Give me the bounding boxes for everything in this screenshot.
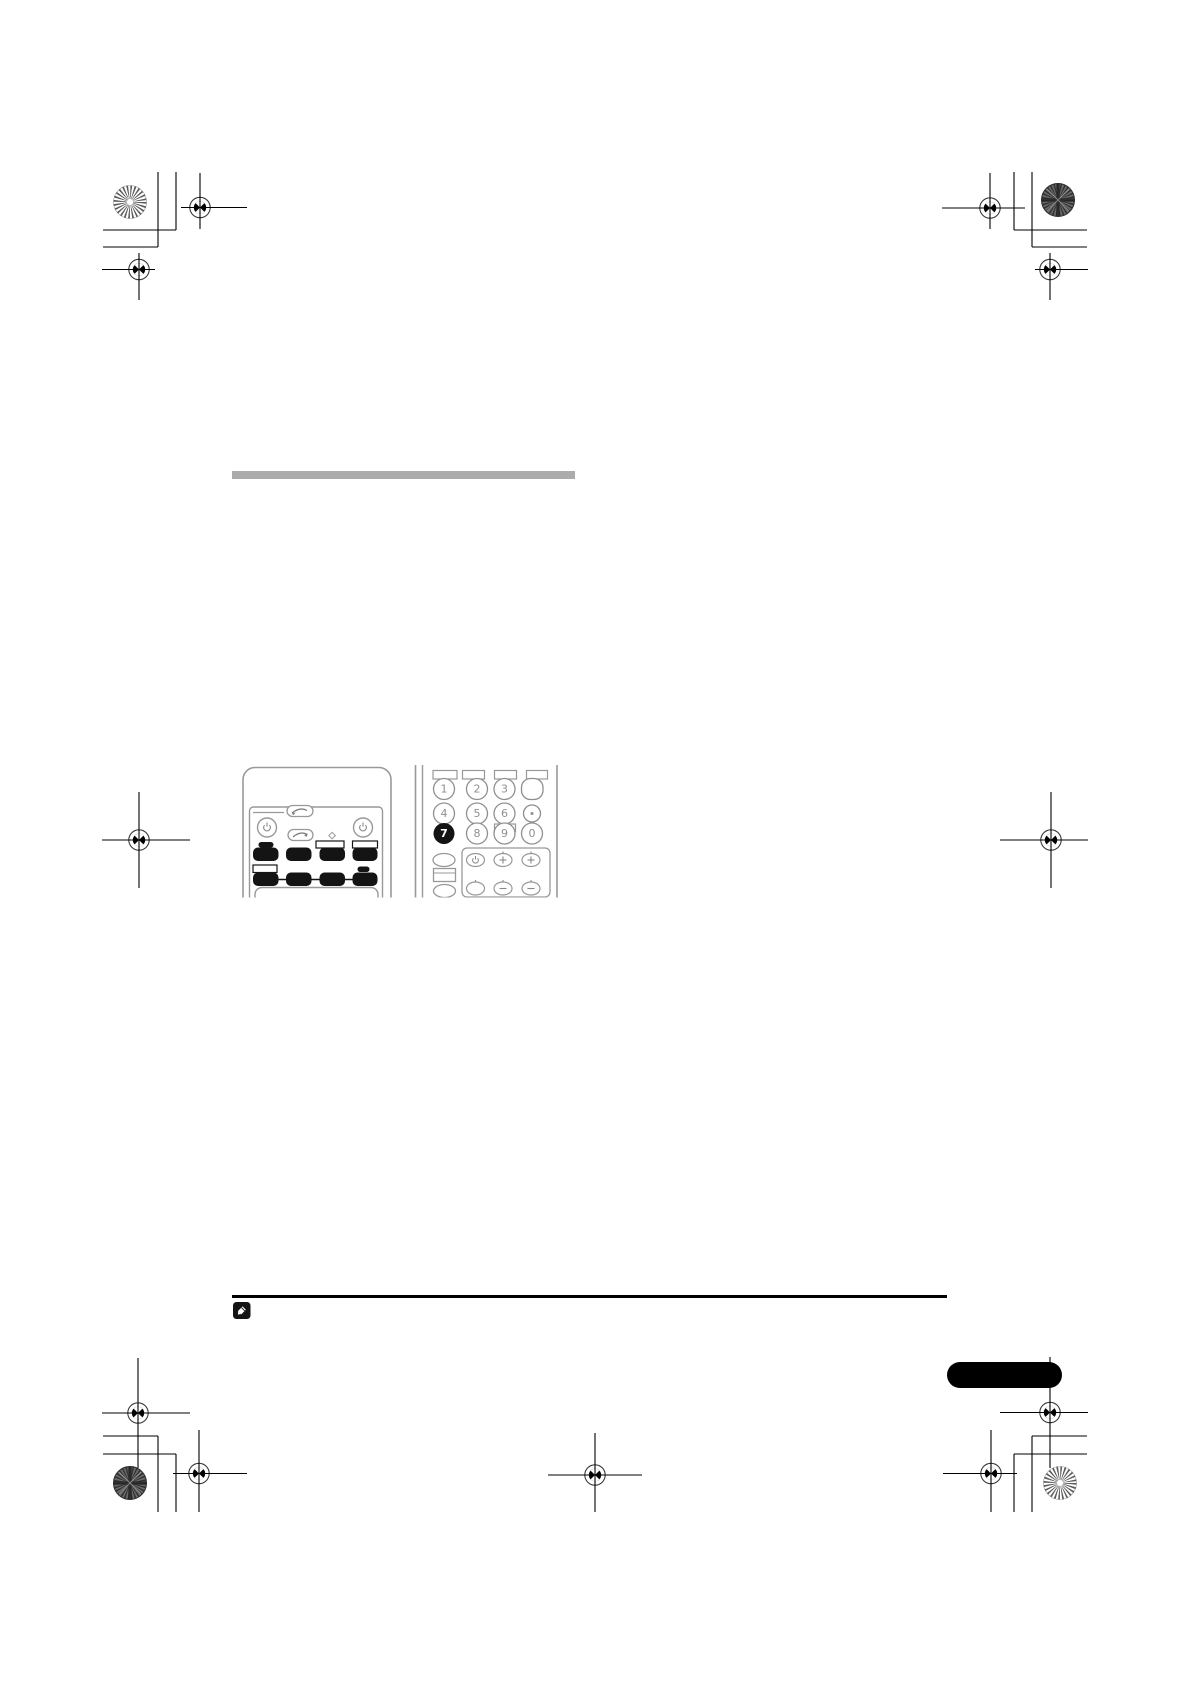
keypad-digit: 9 xyxy=(501,827,508,840)
curved-arrow-icon xyxy=(293,833,308,837)
power-icon xyxy=(473,856,479,863)
keypad-digit: 4 xyxy=(441,807,448,820)
keypad-button-1 xyxy=(434,779,455,800)
keypad-row-1: 1 2 3 xyxy=(434,779,544,800)
minus-oval-button xyxy=(522,882,540,895)
registration-target xyxy=(181,173,247,229)
keypad-button-dot xyxy=(524,805,541,822)
keypad-button-2 xyxy=(467,779,488,800)
registration-target xyxy=(942,173,1025,229)
flip-arrow-button xyxy=(288,830,313,841)
manual-page: 1 2 3 4 5 6 xyxy=(0,0,1190,1684)
plus-icon xyxy=(528,852,535,864)
power-button xyxy=(258,818,277,837)
keypad-row-3: 7 8 9 0 xyxy=(434,823,543,844)
keypad-digit: 3 xyxy=(501,783,508,796)
starburst-mark xyxy=(1044,1467,1077,1500)
dot-icon xyxy=(531,812,534,815)
remote-keypad: 1 2 3 4 5 6 xyxy=(416,765,558,898)
keypad-button-3 xyxy=(494,779,515,800)
keypad-sub-panel xyxy=(462,848,550,897)
crop-mark xyxy=(1014,172,1087,247)
remote-control-figure: 1 2 3 4 5 6 xyxy=(243,765,557,915)
label-button xyxy=(353,841,378,848)
minus-icon xyxy=(528,880,535,889)
keypad-button-5 xyxy=(467,803,488,824)
keypad-button-0 xyxy=(522,823,543,844)
minus-oval-button xyxy=(494,882,512,895)
plus-icon xyxy=(500,852,507,864)
keypad-button-blank xyxy=(522,779,544,800)
power-icon xyxy=(360,823,367,831)
keypad-digit: 6 xyxy=(501,807,508,820)
note-divider-rule xyxy=(232,1295,947,1298)
registration-target xyxy=(1000,792,1088,888)
keypad-button-4 xyxy=(434,803,455,824)
starburst-mark xyxy=(114,1467,147,1500)
registration-target xyxy=(173,1430,247,1512)
power-button xyxy=(354,818,373,837)
indicator-diamond xyxy=(329,832,336,839)
starburst-mark xyxy=(114,186,147,219)
pencil-note-icon xyxy=(233,1302,251,1319)
registration-target xyxy=(548,1433,642,1512)
small-pill-button xyxy=(358,867,370,873)
crop-mark xyxy=(103,172,176,247)
section-heading-bar xyxy=(232,471,575,479)
keypad-button-9 xyxy=(494,823,515,844)
small-pill-button xyxy=(259,842,274,848)
rect-button xyxy=(434,869,456,882)
crop-mark xyxy=(103,1436,176,1512)
button-row-1 xyxy=(253,848,378,862)
lower-panel-outline xyxy=(255,888,378,913)
label-button xyxy=(316,841,344,848)
registration-target xyxy=(943,1430,1017,1512)
registration-target xyxy=(102,253,155,300)
keypad-digit: 8 xyxy=(474,827,481,840)
registration-marks-layer xyxy=(102,172,1088,1512)
power-icon xyxy=(264,823,271,831)
page-edge-tab xyxy=(947,1362,1062,1388)
keypad-button-8 xyxy=(467,823,488,844)
crop-mark xyxy=(1014,1436,1087,1512)
curved-arrow-icon xyxy=(292,809,307,813)
registration-target xyxy=(1035,253,1088,300)
minus-icon xyxy=(500,880,507,889)
artwork-layer: 1 2 3 4 5 6 xyxy=(0,0,1190,1684)
oval-button xyxy=(433,854,455,867)
keypad-digit: 2 xyxy=(474,783,481,796)
label-button xyxy=(253,865,277,873)
keypad-button-7-highlighted xyxy=(434,823,455,844)
keypad-row-2: 4 5 6 xyxy=(434,803,541,824)
plus-oval-button xyxy=(522,854,540,867)
standby-oval-button xyxy=(467,854,485,867)
oval-button xyxy=(467,882,485,895)
key-label-rects xyxy=(433,771,548,780)
key-label-rect xyxy=(495,824,516,832)
button-row-2 xyxy=(253,873,378,887)
oval-button xyxy=(434,885,456,898)
keypad-digit: 0 xyxy=(529,827,536,840)
registration-target xyxy=(102,1358,190,1468)
remote-top-panel xyxy=(243,768,391,916)
keypad-digit: 1 xyxy=(441,783,448,796)
keypad-digit: 7 xyxy=(440,827,448,840)
keypad-digit: 5 xyxy=(474,807,481,820)
plus-oval-button xyxy=(494,854,512,867)
keypad-button-6 xyxy=(494,803,515,824)
starburst-mark xyxy=(1042,184,1075,217)
flip-arrow-button xyxy=(287,806,313,817)
registration-target xyxy=(102,792,190,888)
